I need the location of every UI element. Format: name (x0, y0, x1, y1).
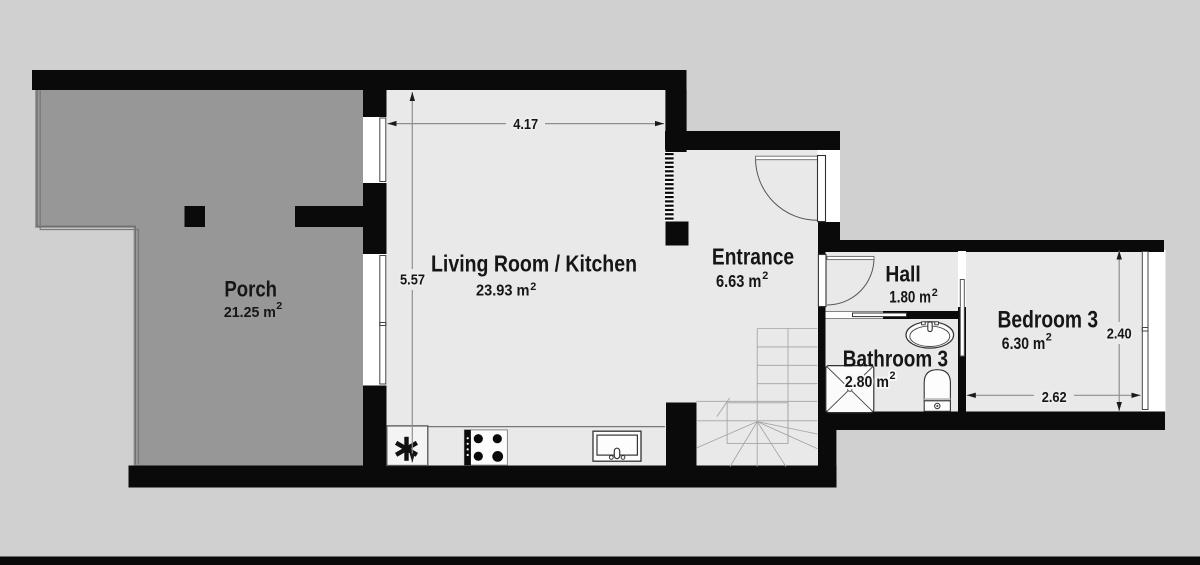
svg-text:2: 2 (932, 287, 938, 299)
svg-text:Bedroom 3: Bedroom 3 (998, 307, 1099, 334)
svg-text:1.80 m: 1.80 m (889, 289, 931, 307)
svg-text:2: 2 (1046, 332, 1052, 344)
svg-text:Living Room / Kitchen: Living Room / Kitchen (431, 251, 637, 277)
svg-text:2.62: 2.62 (1042, 389, 1067, 406)
svg-text:6.63 m: 6.63 m (716, 271, 761, 291)
svg-text:4.17: 4.17 (513, 116, 538, 133)
svg-text:23.93 m: 23.93 m (476, 283, 530, 300)
svg-text:21.25 m: 21.25 m (224, 304, 276, 321)
svg-text:Bathroom 3: Bathroom 3 (843, 346, 948, 372)
svg-text:2: 2 (276, 301, 282, 312)
svg-text:2: 2 (530, 281, 536, 293)
svg-text:Entrance: Entrance (712, 244, 794, 270)
svg-text:5.57: 5.57 (400, 272, 425, 289)
svg-text:Hall: Hall (885, 262, 920, 287)
svg-text:2.40: 2.40 (1107, 325, 1132, 342)
svg-text:2.80 m: 2.80 m (845, 374, 889, 391)
svg-text:2: 2 (762, 270, 768, 282)
svg-text:2: 2 (890, 370, 896, 382)
svg-text:6.30 m: 6.30 m (1002, 335, 1046, 353)
svg-text:Porch: Porch (224, 276, 277, 301)
